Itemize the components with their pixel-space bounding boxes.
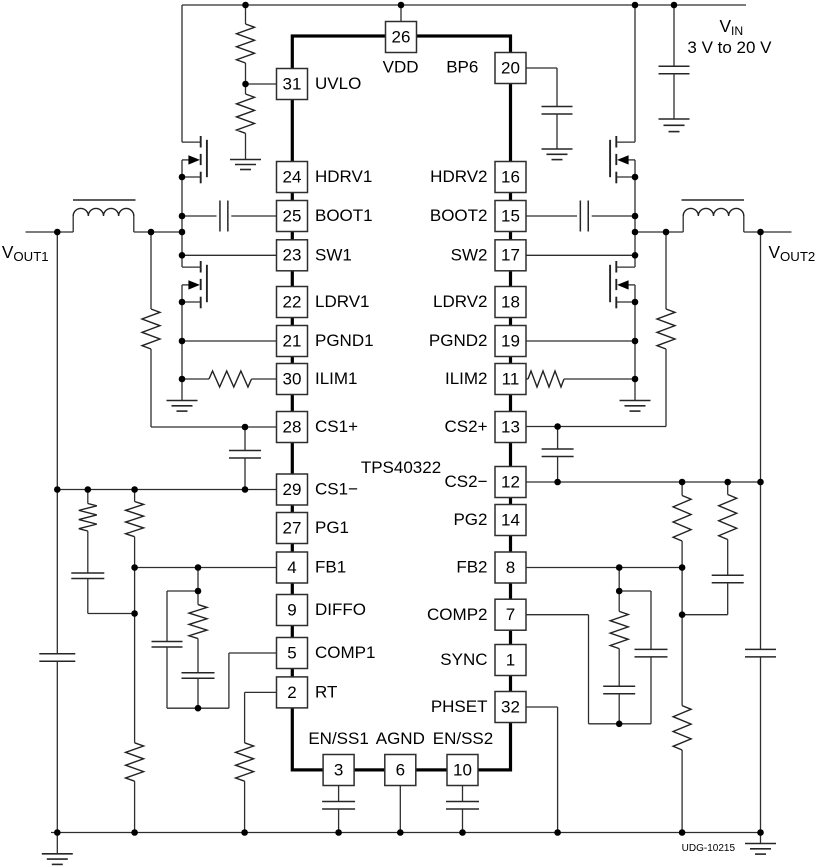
svg-text:8: 8 <box>506 558 515 577</box>
svg-text:26: 26 <box>392 27 411 46</box>
svg-text:DIFFO: DIFFO <box>315 600 366 619</box>
svg-text:30: 30 <box>283 369 302 388</box>
svg-text:29: 29 <box>283 480 302 499</box>
svg-text:VOUT2: VOUT2 <box>769 242 816 264</box>
svg-text:28: 28 <box>283 417 302 436</box>
svg-text:16: 16 <box>501 167 520 186</box>
svg-text:BP6: BP6 <box>446 58 478 77</box>
svg-text:9: 9 <box>287 600 296 619</box>
svg-text:1: 1 <box>506 650 515 669</box>
svg-text:LDRV1: LDRV1 <box>315 292 370 311</box>
svg-text:18: 18 <box>501 292 520 311</box>
svg-text:CS1−: CS1− <box>315 480 358 499</box>
svg-text:AGND: AGND <box>376 729 425 748</box>
svg-text:VIN: VIN <box>720 16 744 38</box>
svg-text:BOOT1: BOOT1 <box>315 206 373 225</box>
svg-text:7: 7 <box>506 605 515 624</box>
svg-text:BOOT2: BOOT2 <box>430 206 488 225</box>
svg-text:COMP2: COMP2 <box>427 605 487 624</box>
svg-text:VDD: VDD <box>383 58 419 77</box>
svg-text:PG2: PG2 <box>453 510 487 529</box>
svg-text:31: 31 <box>283 74 302 93</box>
svg-text:12: 12 <box>501 472 520 491</box>
svg-text:15: 15 <box>501 206 520 225</box>
svg-text:FB1: FB1 <box>315 558 346 577</box>
svg-text:22: 22 <box>283 292 302 311</box>
svg-text:ILIM1: ILIM1 <box>315 369 358 388</box>
svg-text:2: 2 <box>287 683 296 702</box>
svg-text:HDRV1: HDRV1 <box>315 167 372 186</box>
svg-text:CS2−: CS2− <box>445 472 488 491</box>
svg-text:3 V to 20 V: 3 V to 20 V <box>687 38 772 57</box>
svg-text:EN/SS2: EN/SS2 <box>433 729 493 748</box>
svg-text:20: 20 <box>501 58 520 77</box>
svg-text:6: 6 <box>396 760 405 779</box>
svg-text:14: 14 <box>501 510 520 529</box>
svg-text:PGND2: PGND2 <box>429 331 488 350</box>
svg-text:UDG-10215: UDG-10215 <box>682 843 736 854</box>
svg-text:PG1: PG1 <box>315 518 349 537</box>
svg-text:17: 17 <box>501 246 520 265</box>
svg-text:COMP1: COMP1 <box>315 643 375 662</box>
svg-text:SW1: SW1 <box>315 246 352 265</box>
svg-text:4: 4 <box>287 558 296 577</box>
svg-text:TPS40322: TPS40322 <box>361 458 441 477</box>
svg-text:CS1+: CS1+ <box>315 417 358 436</box>
svg-text:23: 23 <box>283 246 302 265</box>
svg-text:24: 24 <box>283 167 302 186</box>
svg-text:HDRV2: HDRV2 <box>430 167 487 186</box>
svg-text:3: 3 <box>334 760 343 779</box>
svg-text:FB2: FB2 <box>456 558 487 577</box>
svg-text:ILIM2: ILIM2 <box>445 369 488 388</box>
svg-text:RT: RT <box>315 683 337 702</box>
svg-text:13: 13 <box>501 417 520 436</box>
svg-text:5: 5 <box>287 643 296 662</box>
svg-text:21: 21 <box>283 331 302 350</box>
svg-text:SYNC: SYNC <box>440 650 487 669</box>
svg-text:27: 27 <box>283 518 302 537</box>
svg-text:SW2: SW2 <box>451 246 488 265</box>
svg-text:PHSET: PHSET <box>431 697 488 716</box>
svg-text:25: 25 <box>283 206 302 225</box>
svg-text:11: 11 <box>502 369 520 388</box>
svg-text:10: 10 <box>453 760 472 779</box>
svg-text:32: 32 <box>501 697 520 716</box>
svg-text:19: 19 <box>501 331 520 350</box>
svg-text:LDRV2: LDRV2 <box>433 292 488 311</box>
svg-text:PGND1: PGND1 <box>315 331 374 350</box>
svg-text:EN/SS1: EN/SS1 <box>308 729 368 748</box>
svg-text:VOUT1: VOUT1 <box>2 242 49 264</box>
svg-text:CS2+: CS2+ <box>445 417 488 436</box>
svg-text:UVLO: UVLO <box>315 74 361 93</box>
